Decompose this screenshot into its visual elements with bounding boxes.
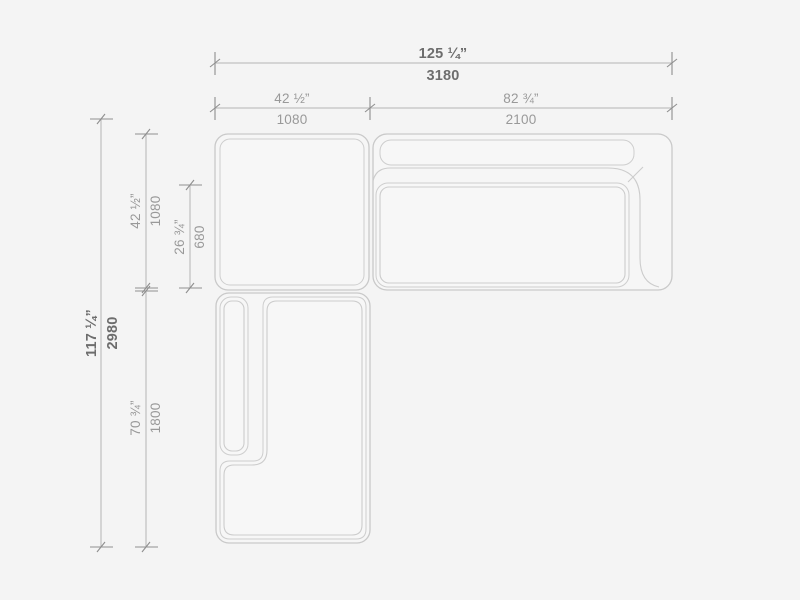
corner-module-depth-inches-label: 42 ½” [128, 193, 143, 229]
right-sofa-module [373, 134, 672, 290]
seat-depth-mm-label: 680 [192, 225, 207, 248]
dimension-drawing: 125 ¼” 3180 42 ½” 1080 82 ¾” 2100 117 ¼”… [0, 0, 800, 600]
overall-depth-mm-label: 2980 [105, 316, 121, 349]
corner-module-depth-mm-label: 1080 [148, 196, 163, 227]
overall-width-inches-label: 125 ¼” [419, 46, 468, 62]
left-module-width-inches-label: 42 ½” [274, 91, 310, 106]
right-module-width-mm-label: 2100 [506, 112, 537, 127]
overall-width-mm-label: 3180 [426, 68, 459, 84]
right-module-width-inches-label: 82 ¾” [503, 91, 539, 106]
chaise-module [216, 293, 370, 543]
right-module-seat-cushion [376, 183, 629, 287]
corner-module [215, 134, 369, 290]
corner-module-cushion [220, 139, 364, 285]
chaise-length-inches-label: 70 ¾” [128, 400, 143, 436]
right-module-back-cushion [380, 140, 634, 165]
left-module-width-mm-label: 1080 [277, 112, 308, 127]
seat-depth-inches-label: 26 ¾” [172, 219, 187, 255]
overall-depth-inches-label: 117 ¼” [84, 309, 100, 357]
chaise-length-mm-label: 1800 [148, 403, 163, 434]
canvas-background [0, 0, 800, 600]
